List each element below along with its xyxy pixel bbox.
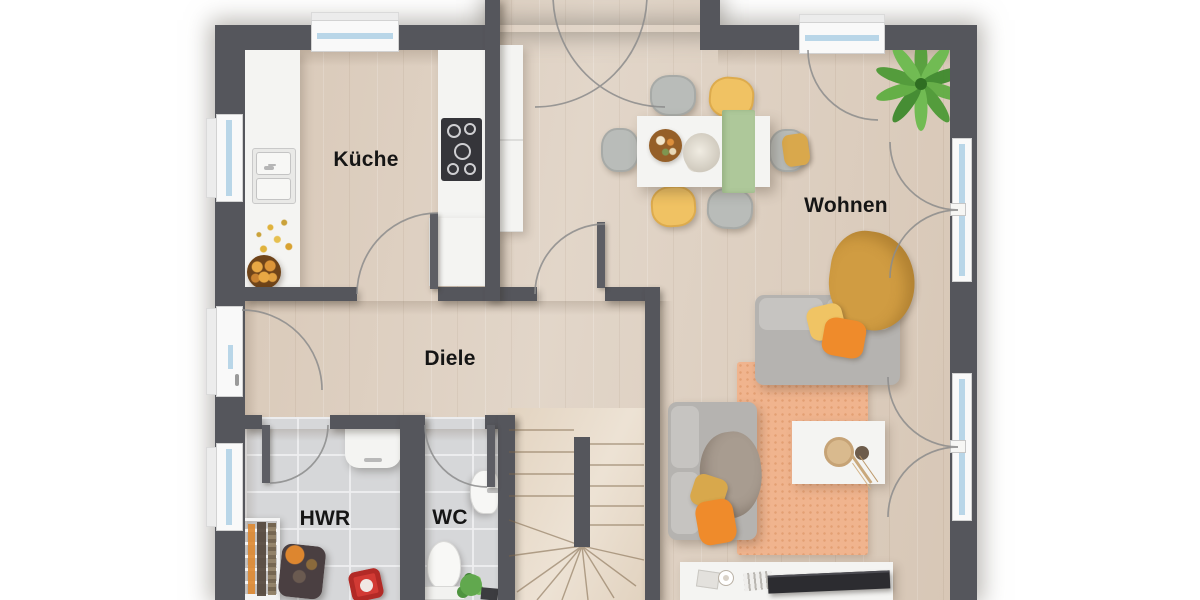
door-swing-arc [242,0,958,517]
room-label-wc: WC [432,506,467,530]
floor-plan: Küche Wohnen Diele HWR WC [0,0,1200,600]
room-label-hall: Diele [424,347,475,371]
room-label-kitchen: Küche [333,148,398,172]
door-swing-arcs-and-stairs [0,0,1200,600]
stair-core [574,437,590,547]
room-label-utility: HWR [300,507,351,531]
room-label-living: Wohnen [804,194,888,218]
